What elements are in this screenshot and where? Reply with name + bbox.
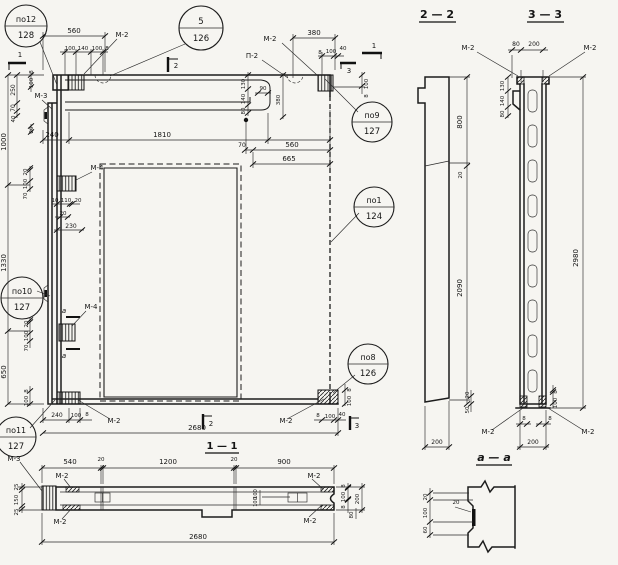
dim: 80 bbox=[241, 107, 247, 114]
dim: 20 bbox=[98, 457, 105, 463]
cut-label-3: 3 bbox=[355, 422, 359, 430]
dim: 100 bbox=[24, 330, 30, 341]
dim: 100 bbox=[347, 395, 353, 406]
dim: 150 bbox=[14, 494, 20, 505]
dim-70: 70 bbox=[238, 142, 246, 149]
dim-80: 80 bbox=[512, 41, 520, 48]
callout-sheet: 126 bbox=[193, 34, 209, 44]
section-1-1: 1 — 1 540 20 1200 20 900 М-2 М-2 М-2 М-2… bbox=[7, 441, 365, 545]
embed-m3 bbox=[42, 486, 56, 510]
top-rib bbox=[65, 80, 270, 110]
dim-2980: 2980 bbox=[572, 249, 580, 267]
mark-m2: М-2 bbox=[107, 417, 120, 425]
callout-po8: по8 126 bbox=[348, 344, 388, 384]
drawing-sheet: 560 100 140 100 8 М-2 380 8 100 40 М-2 П… bbox=[0, 0, 618, 565]
callout-pos: по9 bbox=[364, 111, 379, 120]
dim: 20 bbox=[231, 457, 238, 463]
panel-working-drawing: 560 100 140 100 8 М-2 380 8 100 40 М-2 П… bbox=[0, 0, 618, 565]
callout-po12: по12 128 bbox=[5, 5, 47, 47]
dim: 140 bbox=[78, 46, 89, 52]
dim: 100 bbox=[253, 497, 259, 507]
dim: 100 bbox=[92, 46, 103, 52]
dim: 20 bbox=[24, 320, 30, 327]
callout-sheet: 127 bbox=[8, 442, 24, 452]
dim: 20 bbox=[60, 211, 67, 217]
mark-p2: П-2 bbox=[246, 52, 258, 60]
dim-1330: 1330 bbox=[0, 254, 8, 272]
dim: 8 bbox=[316, 413, 320, 419]
dim: 900 bbox=[277, 458, 290, 466]
dim-20: 20 bbox=[458, 171, 464, 178]
callout-5: 5 126 bbox=[179, 6, 223, 50]
leader-lines bbox=[30, 39, 359, 428]
detail-a-a: а — а 20 100 60 20 bbox=[423, 451, 515, 552]
dim: 8 bbox=[341, 505, 347, 509]
section-title-3-3: 3 — 3 bbox=[528, 8, 562, 21]
dim: 80 bbox=[500, 110, 506, 117]
dim: 20 bbox=[453, 500, 460, 506]
embed-plate bbox=[517, 77, 524, 84]
dim-ticks bbox=[5, 33, 365, 435]
section-title-1-1: 1 — 1 bbox=[207, 441, 238, 452]
dim: 380 bbox=[276, 94, 282, 105]
dim-50: 50 bbox=[465, 406, 471, 413]
dim: 40 bbox=[340, 46, 347, 52]
dim: 100 bbox=[71, 413, 82, 419]
dim: 110 bbox=[61, 198, 72, 204]
dim-240: 240 bbox=[45, 131, 58, 139]
groove-gasket bbox=[45, 290, 48, 297]
dim: 130 bbox=[241, 78, 247, 89]
dim: 25 bbox=[14, 508, 20, 515]
leaders-3-3 bbox=[477, 52, 585, 430]
groove-gasket bbox=[472, 509, 476, 526]
mark-m2: М-2 bbox=[581, 428, 594, 436]
mark-m2: М-2 bbox=[583, 44, 596, 52]
embed-pad bbox=[66, 487, 79, 492]
callout-pos: 5 bbox=[198, 17, 203, 27]
cut-label-a: а bbox=[62, 307, 66, 315]
cut-label-1: 1 bbox=[372, 42, 376, 50]
dim: 100 bbox=[423, 507, 429, 518]
mark-m4: М-4 bbox=[84, 303, 98, 311]
callout-pos: по8 bbox=[360, 353, 375, 362]
dim: 70 bbox=[23, 192, 29, 199]
mark-m2: М-2 bbox=[461, 44, 474, 52]
dim: 8 bbox=[347, 388, 353, 392]
key-slots bbox=[95, 493, 307, 502]
section-title-a-a: а — а bbox=[477, 451, 511, 464]
callout-sheet: 127 bbox=[14, 303, 30, 313]
callout-po1: по1 124 bbox=[354, 187, 394, 227]
dim-560: 560 bbox=[285, 141, 298, 149]
dim: 80 bbox=[349, 511, 355, 518]
mark-m2: М-2 bbox=[115, 31, 128, 39]
callout-po10: по10 127 bbox=[1, 277, 43, 319]
cut-flag-ticks bbox=[9, 53, 381, 418]
cut-label-3: 3 bbox=[347, 67, 351, 75]
embed-plate bbox=[539, 396, 546, 407]
dim-top-380: 380 bbox=[307, 29, 320, 37]
dim: 100 bbox=[326, 49, 337, 55]
hollow-slots bbox=[528, 90, 537, 392]
dim: 8 bbox=[105, 46, 109, 52]
dim: 100 bbox=[341, 491, 347, 502]
dim: 8 bbox=[553, 390, 559, 394]
cut-label-1: 1 bbox=[18, 51, 22, 59]
dim: 70 bbox=[10, 104, 17, 112]
opening-solid-contour bbox=[104, 168, 237, 397]
lifting-loop-icon bbox=[95, 75, 303, 83]
section-title-2-2: 2 — 2 bbox=[420, 8, 454, 21]
dim-2090: 2090 bbox=[456, 279, 464, 297]
dim: 100 bbox=[65, 46, 76, 52]
dim: 240 bbox=[51, 412, 63, 419]
dim-1810: 1810 bbox=[153, 131, 171, 139]
dim: 100 bbox=[23, 178, 29, 189]
section-3-3: 3 — 3 80 200 М-2 М-2 130 140 80 2980 8 8… bbox=[461, 8, 596, 450]
dim-20: 20 bbox=[465, 391, 471, 398]
dim: 250 bbox=[10, 84, 17, 96]
dim: 40 bbox=[339, 412, 346, 418]
dim-200: 200 bbox=[528, 41, 540, 48]
dim: 200 bbox=[355, 493, 361, 504]
embed-pad bbox=[63, 505, 80, 510]
dim: 8 bbox=[85, 412, 89, 418]
dim-200: 200 bbox=[431, 439, 443, 446]
embed-plates bbox=[57, 75, 338, 404]
dim: 40 bbox=[11, 115, 17, 122]
dim: 100 bbox=[553, 397, 559, 408]
dim: 10 bbox=[52, 198, 59, 204]
dim: 20 bbox=[423, 493, 429, 500]
dim-230: 230 bbox=[65, 223, 77, 230]
dim: 100 bbox=[24, 395, 30, 406]
dim: 20 bbox=[23, 168, 29, 175]
main-elevation-view: 560 100 140 100 8 М-2 380 8 100 40 М-2 П… bbox=[0, 27, 382, 436]
dim: 140 bbox=[500, 95, 506, 106]
callout-pos: по10 bbox=[12, 287, 32, 296]
callout-sheet: 128 bbox=[18, 31, 34, 41]
callout-po11: по11 127 bbox=[0, 417, 36, 457]
mark-m2: М-2 bbox=[55, 472, 68, 480]
dim-200: 200 bbox=[527, 439, 539, 446]
mark-m2: М-2 bbox=[303, 517, 316, 525]
dim: 8 bbox=[548, 416, 552, 422]
dim: 25 bbox=[14, 483, 20, 490]
callout-sheet: 124 bbox=[366, 212, 382, 222]
opening-dashed-contour bbox=[100, 164, 241, 401]
profile-2-2 bbox=[418, 77, 449, 402]
dim-800: 800 bbox=[456, 115, 464, 128]
panel-outline bbox=[48, 75, 338, 404]
dim: 130 bbox=[500, 80, 506, 91]
dim: 20 bbox=[29, 126, 35, 133]
dim-2680: 2680 bbox=[189, 533, 207, 541]
dim: 100 bbox=[29, 77, 35, 88]
dim: 8 bbox=[522, 416, 526, 422]
embed-plate bbox=[520, 396, 527, 407]
callout-pos: по1 bbox=[366, 196, 381, 205]
mark-m2: М-2 bbox=[53, 518, 66, 526]
dim-1000: 1000 bbox=[0, 133, 8, 151]
dim: 8 bbox=[318, 50, 322, 56]
callout-pos: по12 bbox=[16, 15, 36, 24]
mark-m2: М-2 bbox=[263, 35, 276, 43]
dim: 8 bbox=[341, 484, 347, 488]
dim: 60 bbox=[423, 526, 429, 533]
callout-pos: по11 bbox=[6, 426, 26, 435]
dim: 540 bbox=[63, 458, 76, 466]
mark-m3: М-3 bbox=[34, 92, 47, 100]
dim-top-560: 560 bbox=[67, 27, 80, 35]
dim: 8 bbox=[29, 70, 35, 74]
dim: 140 bbox=[241, 93, 247, 104]
dim: 20 bbox=[75, 198, 82, 204]
mark-m2: М-2 bbox=[279, 417, 292, 425]
mark-m3: М-3 bbox=[7, 455, 20, 463]
cut-label-a: а bbox=[62, 352, 66, 360]
dim-2680: 2680 bbox=[188, 424, 206, 432]
dim-665: 665 bbox=[282, 155, 295, 163]
callout-sheet: 127 bbox=[364, 127, 380, 137]
dim: 90 bbox=[260, 86, 267, 92]
section-2-2: 2 — 2 800 20 2090 200 20 50 bbox=[418, 8, 474, 450]
mark-m4: М-4 bbox=[90, 164, 104, 172]
cut-label-2: 2 bbox=[174, 62, 178, 70]
embed-pad bbox=[321, 505, 334, 510]
dim-650: 650 bbox=[0, 365, 8, 378]
dim: 8 bbox=[24, 389, 30, 393]
mark-m2: М-2 bbox=[307, 472, 320, 480]
reference-dot bbox=[244, 118, 248, 122]
mark-m2: М-2 bbox=[481, 428, 494, 436]
dim: 8 bbox=[364, 94, 370, 98]
dim: 100 bbox=[364, 78, 370, 89]
dim: 1200 bbox=[159, 458, 177, 466]
dim: 100 bbox=[325, 414, 336, 420]
dim: 70 bbox=[24, 344, 30, 351]
cut-label-2: 2 bbox=[209, 420, 213, 428]
embed-pad bbox=[321, 487, 334, 492]
groove-gasket bbox=[45, 112, 48, 119]
dims-a-a bbox=[430, 488, 473, 538]
callout-po9: по9 127 bbox=[352, 102, 392, 142]
profile-3-3 bbox=[513, 77, 550, 408]
callout-sheet: 126 bbox=[360, 369, 376, 379]
